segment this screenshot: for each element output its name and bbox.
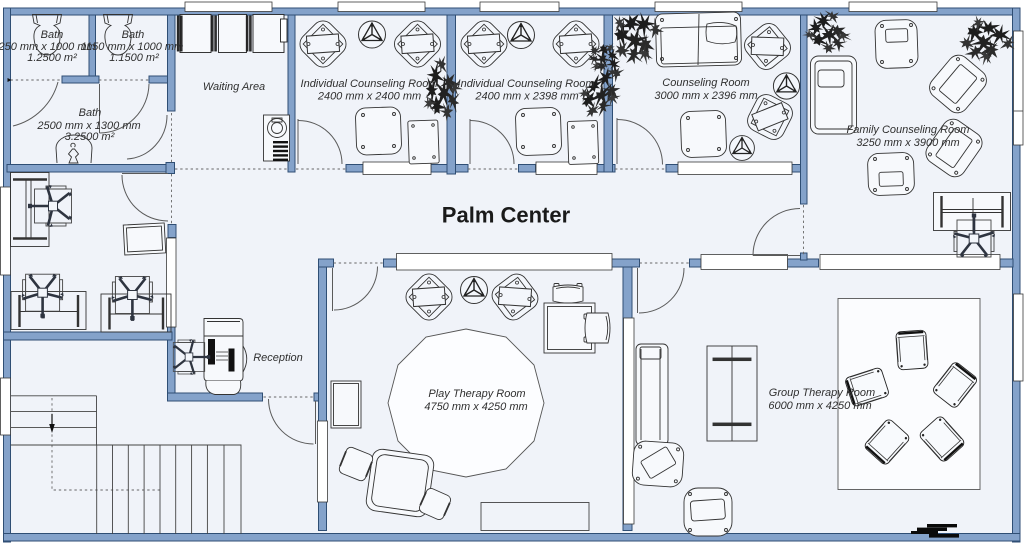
svg-text:Individual Counseling Room: Individual Counseling Room [458,78,595,90]
svg-text:Group Therapy Room: Group Therapy Room [769,387,875,399]
svg-text:Family Counseling Room: Family Counseling Room [847,124,970,136]
svg-text:Bath: Bath [122,29,145,41]
svg-text:1.2500 m²: 1.2500 m² [27,52,77,64]
svg-text:1.1500 m²: 1.1500 m² [109,52,159,64]
svg-text:Bath: Bath [79,107,102,119]
svg-text:4750 mm x 4250 mm: 4750 mm x 4250 mm [424,401,527,413]
svg-text:Play Therapy Room: Play Therapy Room [428,388,525,400]
svg-text:6000 mm x 4250 mm: 6000 mm x 4250 mm [768,400,871,412]
svg-text:2400 mm x 2398 mm: 2400 mm x 2398 mm [474,91,578,103]
svg-text:3000 mm x 2396 mm: 3000 mm x 2396 mm [654,90,757,102]
svg-text:Individual Counseling Room: Individual Counseling Room [301,78,438,90]
svg-text:3250 mm x 3900 mm: 3250 mm x 3900 mm [856,137,959,149]
svg-text:Bath: Bath [41,29,64,41]
svg-text:Palm Center: Palm Center [442,203,571,228]
svg-text:Reception: Reception [253,352,303,364]
svg-text:2400 mm x 2400 mm: 2400 mm x 2400 mm [317,91,421,103]
svg-text:Counseling Room: Counseling Room [662,77,749,89]
svg-text:Waiting Area: Waiting Area [203,81,265,93]
svg-text:3.2500 m²: 3.2500 m² [65,131,115,143]
